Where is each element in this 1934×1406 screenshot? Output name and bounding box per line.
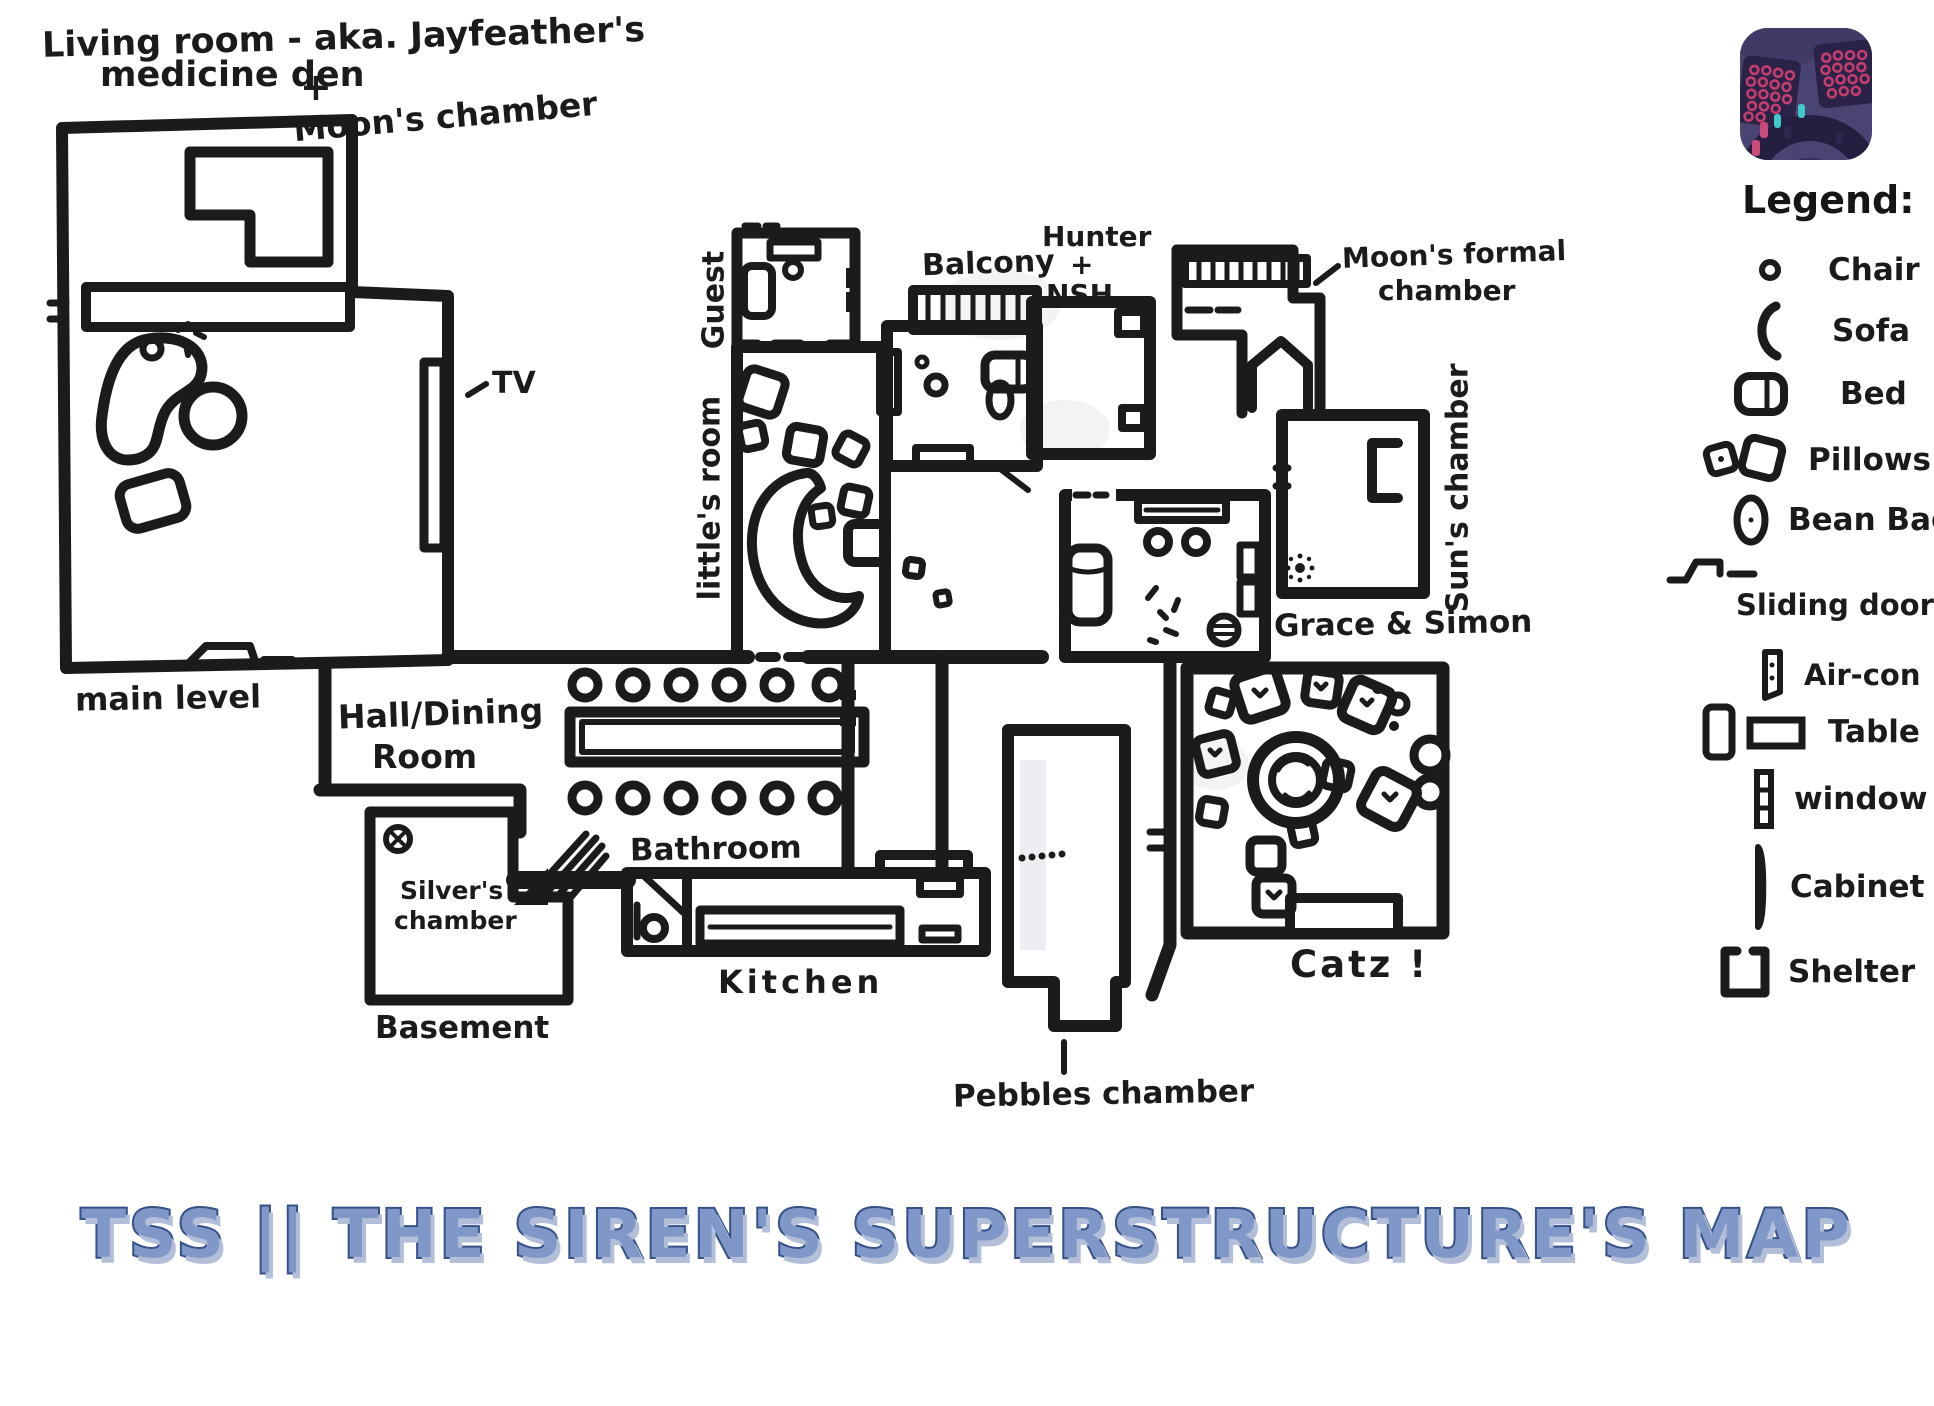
chair-shape	[716, 672, 742, 698]
kitchen-notch	[920, 878, 960, 894]
legend-row-bed: Bed	[1734, 372, 1907, 416]
pillow-shape	[1207, 689, 1234, 716]
chair-shape	[785, 262, 801, 278]
bed-line	[1068, 568, 1108, 572]
legend-row-cabinet: Cabinet	[1750, 842, 1924, 932]
cat-tree-swirl	[1278, 760, 1309, 800]
legend-label: Bed	[1840, 376, 1907, 412]
chair-shape	[1185, 531, 1207, 553]
closet-bracket	[1372, 443, 1398, 498]
pillow-shape	[905, 559, 923, 577]
littles-room	[737, 347, 950, 650]
bed-icon	[1734, 372, 1788, 416]
label-bathroom: Bathroom	[630, 832, 802, 868]
vent-dot	[1039, 853, 1046, 860]
sun-symbol	[1295, 563, 1305, 573]
pillow-shape	[785, 425, 824, 464]
toy-ring	[1389, 695, 1407, 713]
suns-chamber-room	[1276, 415, 1424, 593]
pebbles-chamber	[1008, 730, 1125, 1072]
label-basement: Basement	[375, 1012, 549, 1045]
table-shape	[916, 448, 970, 466]
legend-label: Bean Bag	[1788, 502, 1934, 538]
bean-bag-shape	[1414, 739, 1446, 771]
balcony-room	[880, 290, 1037, 466]
label-hall-dining-line2: Room	[372, 740, 477, 775]
label-guest: Guest	[697, 251, 732, 350]
legend-row-sliding-door: Sliding door	[1736, 588, 1934, 622]
bed-shape	[1068, 548, 1108, 622]
label-catz: Catz !	[1290, 946, 1429, 985]
tv-pointer-line	[468, 384, 486, 395]
legend-label: Cabinet	[1790, 869, 1924, 905]
legend-row-pillows: Pillows	[1700, 432, 1931, 488]
legend-row-shelter: Shelter	[1718, 944, 1915, 1000]
vent-dot	[1059, 851, 1066, 858]
moons-formal-room	[1177, 250, 1338, 413]
wall-notch	[1118, 312, 1144, 334]
game-screenshot-app-icon	[1740, 28, 1872, 160]
pillow-shape	[1250, 840, 1282, 872]
vent-dot	[1049, 852, 1056, 859]
label-plus: +	[300, 68, 332, 108]
sun-ray	[1307, 575, 1311, 579]
bathroom-corner	[645, 877, 684, 913]
tv-shape	[424, 362, 444, 548]
aircon-nub	[846, 268, 856, 288]
chair-shape	[716, 785, 742, 811]
legend-row-sofa: Sofa	[1750, 300, 1910, 362]
chair-shape	[764, 672, 790, 698]
legend-sliding-door-icon-row	[1666, 552, 1770, 586]
legend-label: Air-con	[1804, 658, 1920, 692]
toy-dot	[1372, 682, 1384, 694]
aircon-nub	[846, 292, 856, 312]
dining-set	[570, 672, 864, 811]
legend-label: window	[1794, 781, 1927, 817]
chair-shape	[572, 785, 598, 811]
fan-symbol-x	[390, 831, 406, 847]
sun-ray	[1289, 575, 1293, 579]
label-balcony: Balcony	[921, 246, 1055, 282]
label-tv: TV	[492, 368, 536, 400]
sun-ray	[1307, 557, 1311, 561]
map-title: TSS || THE SIREN'S SUPERSTRUCTURE'S MAP	[0, 1196, 1934, 1273]
chair-shape	[668, 672, 694, 698]
chair-shape	[812, 785, 838, 811]
sun-ray	[1286, 566, 1291, 571]
sun-ray	[1289, 557, 1293, 561]
dining-table-inner	[582, 722, 852, 752]
legend-title: Legend:	[1742, 178, 1914, 222]
pillow-shape	[737, 367, 787, 417]
label-main-level: main level	[75, 680, 262, 717]
chair-shape	[927, 376, 945, 394]
legend-row-air-con: Air-con	[1756, 648, 1920, 702]
sliding-door-icon	[1666, 552, 1770, 586]
wall-bump	[1122, 408, 1144, 428]
pillow-shape	[840, 486, 871, 517]
label-littles-room: little's room	[693, 396, 728, 601]
air-con-icon	[1756, 648, 1788, 702]
app-icon-art	[1740, 28, 1872, 160]
grace-simon-room	[1065, 489, 1265, 657]
pillow-shape	[935, 591, 950, 606]
label-hall-dining-line1: Hall/Dining	[337, 693, 543, 735]
label-moons-formal-line1: Moon's formal	[1342, 236, 1567, 273]
legend-label: Table	[1828, 714, 1920, 750]
legend-row-bean-bag: Bean Bag	[1730, 492, 1934, 548]
pillow-shape	[833, 431, 868, 466]
chair-icon	[1756, 256, 1784, 284]
legend-row-chair: Chair	[1756, 252, 1920, 288]
label-suns-chamber: Sun's chamber	[1441, 363, 1476, 612]
legend-label: Sofa	[1832, 313, 1910, 349]
toy-dot	[1389, 721, 1399, 731]
cat-tree-inner	[1272, 756, 1320, 804]
catz-room	[1187, 666, 1446, 933]
chair-shape	[620, 672, 646, 698]
label-pebbles-chamber: Pebbles chamber	[953, 1075, 1255, 1113]
chair-shape	[1147, 531, 1169, 553]
rug	[117, 470, 189, 531]
legend-label: Chair	[1828, 252, 1920, 288]
cabinet-icon	[1750, 842, 1774, 932]
pillow-shape	[1198, 798, 1226, 826]
bed-shape	[744, 266, 772, 316]
chair-shape	[816, 672, 842, 698]
litter-box	[1210, 616, 1238, 644]
label-grace-simon: Grace & Simon	[1274, 606, 1533, 643]
label-silvers-line2: chamber	[394, 908, 517, 934]
vent-dot	[1019, 855, 1026, 862]
wall-shelf-band	[86, 287, 350, 327]
chair-shape	[620, 785, 646, 811]
window-icon	[1750, 768, 1778, 830]
pentagon-door	[1252, 341, 1308, 408]
sun-ray	[1298, 578, 1303, 583]
kitchen-block	[627, 855, 985, 951]
catz-door	[1290, 898, 1398, 933]
catz-left-outer-wall	[1152, 660, 1170, 995]
legend-label: Sliding door	[1736, 588, 1934, 622]
bean-bag-icon	[1730, 492, 1772, 548]
living-room	[50, 120, 486, 668]
pillow-shape	[738, 422, 766, 450]
label-hunter-line1: Hunter	[1042, 222, 1151, 251]
sun-ray	[1310, 566, 1315, 571]
label-hunter-line3: NSH	[1046, 280, 1113, 309]
label-kitchen: Kitchen	[718, 966, 883, 1000]
shelter-icon	[1718, 944, 1772, 1000]
label-pointer	[1316, 266, 1338, 283]
stairs	[514, 834, 627, 905]
chair-shape	[668, 785, 694, 811]
litter-box-lines	[1214, 626, 1234, 634]
kitchen-notch	[922, 928, 958, 940]
cabinet-shape	[1240, 582, 1258, 614]
inner-chamber-outline	[190, 152, 328, 262]
legend-label: Shelter	[1788, 954, 1915, 990]
label-hunter-line2: +	[1070, 250, 1093, 279]
chair-shape	[764, 785, 790, 811]
pillow-shape	[1290, 820, 1316, 846]
sun-ray	[1298, 554, 1303, 559]
guest-outline	[737, 233, 855, 345]
toilet-bowl	[643, 917, 665, 939]
pillow-shape	[811, 505, 834, 528]
coffee-table	[184, 387, 242, 445]
pillows-icon	[1700, 432, 1792, 488]
guest-room	[737, 226, 856, 345]
chair-shape	[572, 672, 598, 698]
sofa-icon	[1750, 300, 1786, 362]
floor-plan-canvas: Living room - aka. Jayfeather's medicine…	[0, 0, 1934, 1406]
table-shape	[770, 242, 818, 258]
label-moons-formal-line2: chamber	[1378, 276, 1515, 305]
legend-row-table: Table	[1700, 702, 1920, 762]
legend-row-window: window	[1750, 768, 1927, 830]
table-icon	[1700, 702, 1812, 762]
doorknob-dot	[917, 357, 927, 367]
label-silvers-line1: Silver's	[400, 878, 503, 904]
legend-label: Pillows	[1808, 442, 1931, 478]
cat-marks	[1148, 588, 1178, 642]
wall-window-dashes	[1150, 832, 1164, 848]
cabinet-shape	[1240, 545, 1258, 577]
vent-dot	[1029, 854, 1036, 861]
